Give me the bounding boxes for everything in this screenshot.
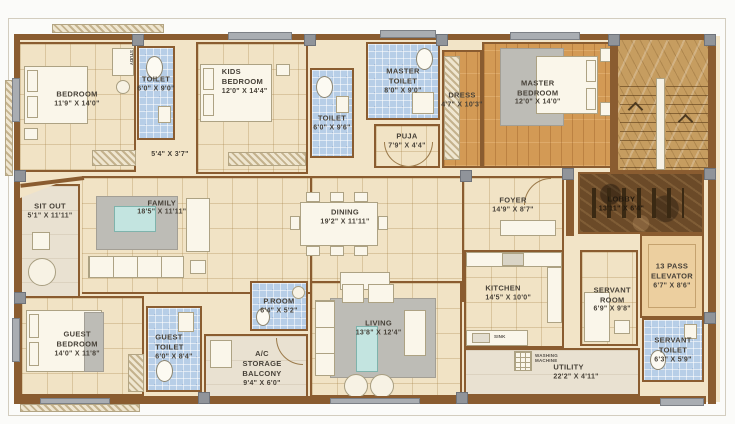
room-label: GUEST TOILET 6'0" X 8'4" (155, 333, 192, 362)
column (14, 170, 26, 182)
room-label: KIDS BEDROOM 12'0" X 14'4" (222, 67, 268, 96)
room-name: BEDROOM (54, 90, 99, 100)
room-label: 13 PASS ELEVATOR 6'7" X 8'6" (651, 262, 693, 291)
window (12, 318, 20, 362)
room-name: GUEST BEDROOM (54, 330, 99, 350)
room-dims: 6'3" X 5'9" (654, 355, 691, 364)
room-sit-out: SIT OUT 5'1" X 11'11" (20, 184, 80, 302)
stairs-flight-left (620, 80, 656, 168)
room-name: GUEST TOILET (155, 333, 192, 353)
room-name: KIDS BEDROOM (222, 67, 268, 87)
washing-machine-label: WASHING MACHINE (535, 353, 558, 364)
room-label: LIVING 13'8" X 12'4" (356, 318, 402, 337)
room-dims: 14'9" X 8'7" (492, 206, 534, 215)
room-label: UTILITY 22'2" X 4'11" (553, 363, 598, 382)
pillow (586, 88, 596, 110)
side-table (32, 232, 50, 250)
room-name: KITCHEN (485, 284, 531, 294)
console-table (500, 220, 556, 236)
bedside-table (24, 128, 38, 140)
dining-chair (330, 192, 344, 202)
room-name: P.ROOM (260, 297, 297, 307)
wardrobe (228, 152, 306, 166)
column (14, 292, 26, 304)
sofa-single (186, 198, 210, 252)
room-label: GUEST BEDROOM 14'0" X 11'8" (54, 330, 99, 359)
bedside-table (276, 64, 290, 76)
washing-machine (514, 351, 532, 371)
room-name: SERVANT TOILET (654, 336, 691, 356)
room-dims: 18'5" X 11'11" (137, 208, 186, 217)
sofa-seat (368, 284, 394, 303)
pillow (586, 60, 596, 82)
room-dims: 8'0" X 9'0" (384, 86, 421, 95)
column (562, 168, 574, 180)
room-label: KITCHEN 14'5" X 10'0" (485, 284, 531, 303)
room-name: DINING (320, 208, 369, 218)
pillow (27, 96, 38, 118)
ac-unit (210, 340, 232, 368)
armchair (404, 310, 426, 356)
room-label: MASTER BEDROOM 12'0" X 14'0" (515, 79, 561, 108)
shower (412, 92, 434, 114)
room-dims: 5'1" X 11'11" (27, 211, 72, 220)
room-label: PUJA 7'9" X 4'4" (388, 132, 425, 151)
room-name: MASTER TOILET (384, 67, 421, 87)
wall (708, 34, 716, 404)
room-dims: 14'5" X 10'0" (485, 294, 531, 303)
room-name: DRESS (441, 90, 483, 100)
room-name: A/C STORAGE BALCONY (240, 349, 284, 378)
washbasin (158, 106, 171, 123)
room-dims: 12'0" X 14'0" (515, 98, 561, 107)
pillow (29, 314, 39, 338)
dining-chair (378, 216, 388, 230)
wardrobe (128, 354, 144, 392)
kitchen-sink (472, 333, 490, 343)
room-label: BEDROOM 11'9" X 14'0" (54, 90, 99, 109)
room-name: FOYER (492, 196, 534, 206)
room-dims: 14'0" X 11'8" (54, 349, 99, 358)
dining-chair (306, 192, 320, 202)
hob (502, 253, 524, 266)
pillow (203, 68, 214, 90)
room-name: TOILET (313, 114, 350, 124)
room-label: DINING 19'2" X 11'11" (320, 208, 369, 227)
room-name: FAMILY (137, 198, 186, 208)
room-dims: 6'4" X 5'2" (260, 306, 297, 315)
room-dims: 13'8" X 12'4" (356, 328, 402, 337)
room-label: LOBBY 13'11" X 6'4" (599, 195, 644, 214)
room-dims: 22'2" X 4'11" (553, 372, 598, 381)
room-label: MASTER TOILET 8'0" X 9'0" (384, 67, 421, 96)
room-name: TOILET (137, 75, 174, 85)
room-label: SIT OUT 5'1" X 11'11" (27, 202, 72, 221)
stairs-divider (656, 78, 665, 170)
column (704, 312, 716, 324)
window (380, 30, 436, 38)
wc-icon (156, 360, 173, 382)
room-dims: 6'9" X 9'8" (594, 305, 631, 314)
room-dims: 12'0" X 14'4" (222, 87, 268, 96)
room-dims: 9'4" X 6'0" (240, 378, 284, 387)
room-label: SERVANT TOILET 6'3" X 5'9" (654, 336, 691, 365)
ledge (52, 24, 164, 33)
kitchen-counter (547, 267, 562, 323)
room-dims: 6'7" X 8'6" (651, 281, 693, 290)
column (608, 34, 620, 46)
side-table (190, 260, 206, 274)
room-dims: 7'9" X 4'4" (388, 142, 425, 151)
wall (610, 36, 616, 174)
study-chair (116, 80, 130, 94)
pillow (203, 94, 214, 116)
study-label: STUDY (129, 50, 134, 65)
window (40, 398, 110, 404)
window (12, 78, 20, 122)
room-name: MASTER BEDROOM (515, 79, 561, 99)
room-label: FOYER 14'9" X 8'7" (492, 196, 534, 215)
room-dims: 4'7" X 10'3" (441, 100, 483, 109)
room-label: TOILET 6'0" X 9'6" (313, 114, 350, 133)
room-name: LOBBY (599, 195, 644, 205)
room-name: SERVANT ROOM (594, 286, 631, 306)
column (198, 392, 210, 404)
side-table (614, 320, 630, 334)
room-label: SERVANT ROOM 6'9" X 9'8" (594, 286, 631, 315)
sofa (315, 300, 335, 376)
pillow (27, 70, 38, 92)
floor-plan: BEDROOM 11'9" X 14'0" TOILET 6'0" X 9'0"… (0, 0, 735, 424)
room-elevator: 13 PASS ELEVATOR 6'7" X 8'6" (640, 234, 704, 318)
room-dims: 13'11" X 6'4" (599, 204, 644, 213)
room-dims: 6'0" X 9'0" (137, 84, 174, 93)
stairwell (616, 36, 712, 172)
column (132, 34, 144, 46)
room-dims: 19'2" X 11'11" (320, 217, 369, 226)
passage-dims: 5'4" X 3'7" (142, 150, 198, 159)
dining-chair (306, 246, 320, 256)
dining-chair (330, 246, 344, 256)
wc-icon (316, 76, 333, 98)
room-dims: 6'0" X 8'4" (155, 353, 192, 362)
room-name: PUJA (388, 132, 425, 142)
room-name: SIT OUT (27, 202, 72, 212)
dining-chair (354, 246, 368, 256)
column (456, 392, 468, 404)
column (460, 170, 472, 182)
dining-chair (290, 216, 300, 230)
pillow (29, 342, 39, 366)
room-label: DRESS 4'7" X 10'3" (441, 90, 483, 109)
pouf (370, 374, 394, 398)
ledge (20, 404, 140, 412)
room-dims: 6'0" X 9'6" (313, 124, 350, 133)
column (704, 168, 716, 180)
pouf (344, 374, 368, 398)
wardrobe (92, 150, 136, 166)
window (228, 32, 292, 40)
passage-label: 5'4" X 3'7" (142, 150, 198, 159)
room-dims: 11'9" X 14'0" (54, 100, 99, 109)
column (436, 34, 448, 46)
room-label: FAMILY 18'5" X 11'11" (137, 198, 186, 217)
dining-chair (354, 192, 368, 202)
room-label: A/C STORAGE BALCONY 9'4" X 6'0" (240, 349, 284, 387)
wall (566, 172, 574, 236)
room-lobby: LOBBY 13'11" X 6'4" (578, 172, 704, 234)
window (510, 32, 580, 40)
room-name: 13 PASS ELEVATOR (651, 262, 693, 282)
room-label: TOILET 6'0" X 9'0" (137, 75, 174, 94)
washbasin (178, 312, 194, 332)
column (304, 34, 316, 46)
sofa-seat (342, 284, 364, 303)
room-name: UTILITY (553, 363, 598, 373)
room-label: P.ROOM 6'4" X 5'2" (260, 297, 297, 316)
sink-label: SINK (494, 334, 506, 339)
column (704, 34, 716, 46)
sofa (88, 256, 184, 278)
washbasin (336, 96, 349, 113)
room-name: LIVING (356, 318, 402, 328)
window (330, 398, 420, 404)
round-table (28, 258, 56, 286)
window (660, 398, 704, 406)
